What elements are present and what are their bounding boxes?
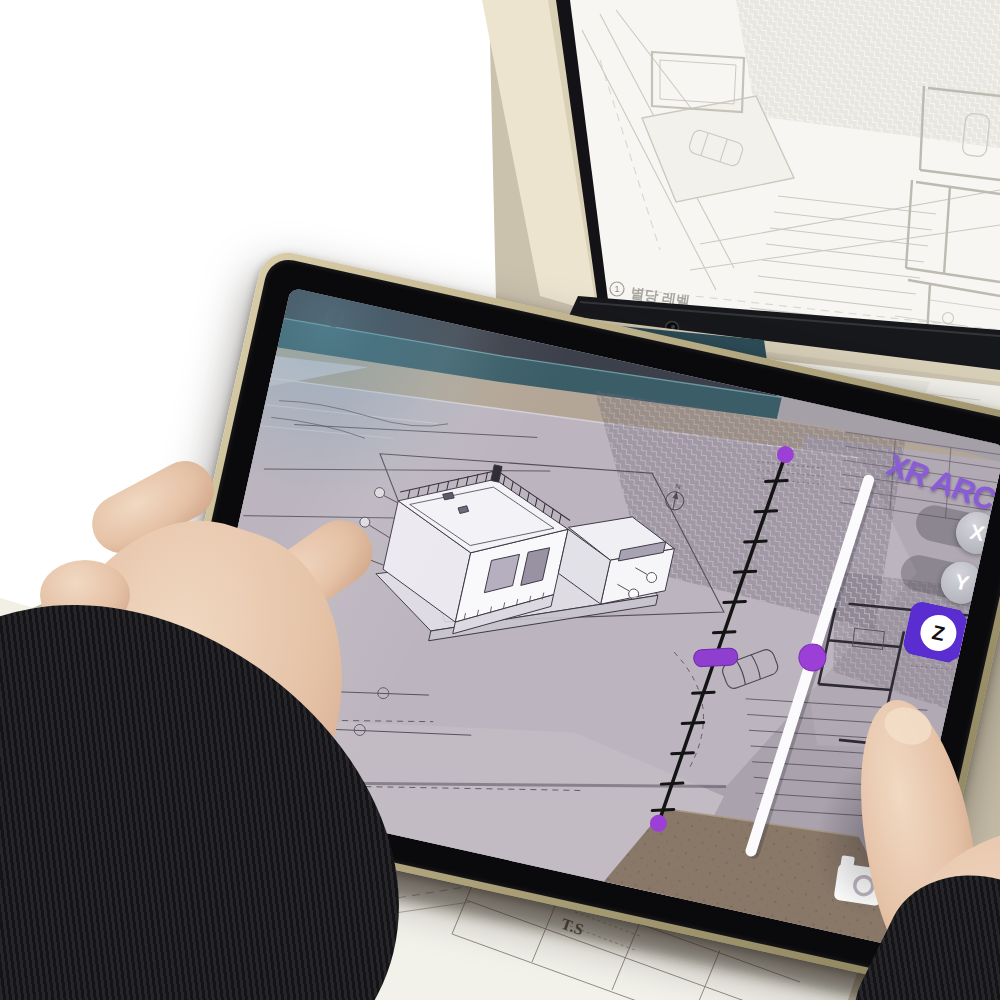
refresh-icon: ↻ [317,298,352,338]
ruler-handle[interactable] [693,648,738,667]
plan-marker: 1 [614,284,619,294]
ar-camera-view[interactable]: N 2700 1480 3400 [180,288,1000,946]
z-axis-button[interactable]: Z [917,611,960,654]
ar-scene: N 2700 1480 3400 [180,288,1000,946]
